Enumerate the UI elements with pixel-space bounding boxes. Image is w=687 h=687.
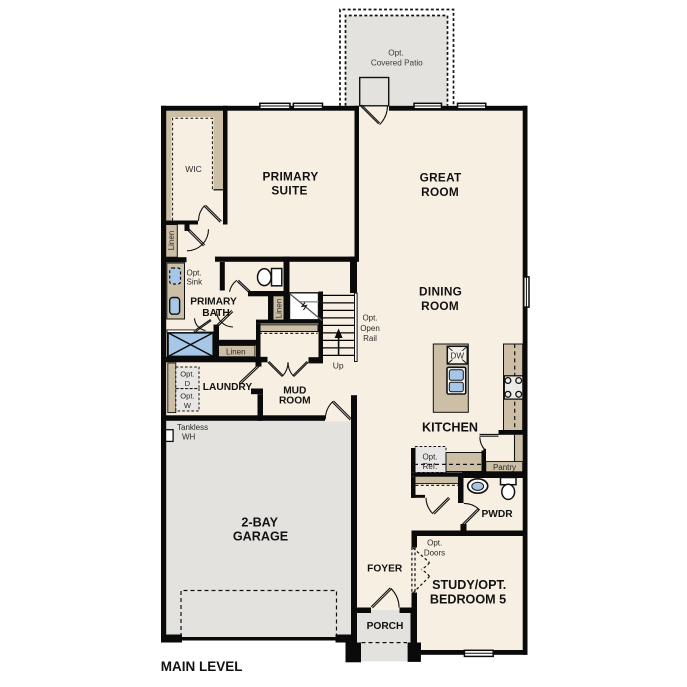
svg-text:Doors: Doors (424, 548, 445, 557)
svg-text:MAIN LEVEL: MAIN LEVEL (161, 659, 243, 674)
svg-text:Tankless: Tankless (177, 423, 208, 432)
svg-text:PRIMARY: PRIMARY (190, 296, 237, 307)
svg-text:Opt.: Opt. (362, 314, 377, 323)
svg-text:PRIMARY: PRIMARY (262, 169, 318, 183)
svg-text:Covered Patio: Covered Patio (371, 58, 423, 67)
svg-text:GARAGE: GARAGE (233, 530, 288, 544)
svg-text:Open: Open (360, 324, 380, 333)
svg-text:WIC: WIC (185, 164, 202, 174)
svg-text:PWDR: PWDR (481, 509, 513, 520)
svg-text:LAUNDRY: LAUNDRY (203, 382, 253, 393)
svg-text:WH: WH (182, 432, 196, 441)
svg-text:FOYER: FOYER (367, 564, 403, 575)
svg-text:ROOM: ROOM (421, 299, 459, 313)
svg-text:Opt.: Opt. (180, 392, 194, 401)
svg-text:Pantry: Pantry (493, 463, 516, 472)
svg-text:2-BAY: 2-BAY (241, 515, 278, 529)
svg-text:Up: Up (333, 361, 344, 371)
svg-text:ROOM: ROOM (421, 185, 459, 199)
svg-text:Ref.: Ref. (423, 462, 438, 471)
svg-text:Sink: Sink (187, 278, 204, 287)
svg-text:Opt.: Opt. (422, 453, 437, 462)
svg-text:DINING: DINING (419, 285, 462, 299)
svg-text:GREAT: GREAT (420, 170, 462, 184)
svg-text:DW: DW (450, 351, 464, 360)
svg-text:KITCHEN: KITCHEN (422, 421, 478, 435)
svg-text:Opt.: Opt. (180, 370, 194, 379)
svg-text:BATH: BATH (202, 308, 230, 319)
svg-text:D: D (185, 379, 191, 388)
svg-text:PORCH: PORCH (367, 621, 404, 632)
svg-text:Opt.: Opt. (427, 539, 442, 548)
svg-text:Linen: Linen (167, 231, 176, 251)
svg-text:BEDROOM 5: BEDROOM 5 (430, 593, 506, 607)
svg-text:SUITE: SUITE (271, 183, 307, 197)
svg-text:STUDY/OPT.: STUDY/OPT. (432, 578, 506, 592)
svg-text:ROOM: ROOM (279, 396, 311, 407)
svg-text:Rail: Rail (363, 334, 377, 343)
svg-text:Linen: Linen (275, 299, 284, 319)
svg-text:Opt.: Opt. (388, 49, 403, 58)
svg-text:W: W (184, 401, 192, 410)
svg-text:Opt.: Opt. (187, 269, 202, 278)
svg-text:Linen: Linen (226, 347, 246, 356)
